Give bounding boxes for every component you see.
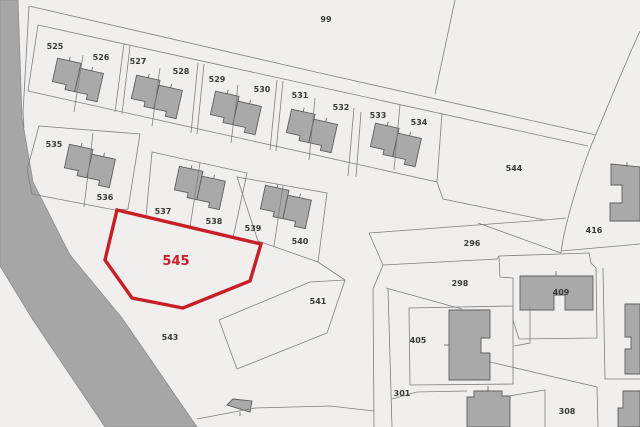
parcel-label-416: 416 — [586, 226, 603, 235]
parcel-label-539: 539 — [245, 224, 262, 233]
parcel-label-534: 534 — [411, 118, 428, 127]
parcel-label-405: 405 — [410, 336, 427, 345]
parcel-label-529: 529 — [209, 75, 226, 84]
highlight-parcel-label-545: 545 — [162, 254, 189, 269]
parcel-label-537: 537 — [155, 207, 172, 216]
parcel-label-531: 531 — [292, 91, 309, 100]
cadastral-map[interactable]: 9952552652752852953053153253353453553653… — [0, 0, 640, 427]
parcel-label-301: 301 — [394, 389, 411, 398]
parcel-label-525: 525 — [47, 42, 64, 51]
cadastral-map-canvas[interactable]: 9952552652752852953053153253353453553653… — [0, 0, 640, 427]
parcel-label-532: 532 — [333, 103, 350, 112]
parcel-label-528: 528 — [173, 67, 190, 76]
parcel-label-544: 544 — [506, 164, 523, 173]
parcel-label-308: 308 — [559, 407, 576, 416]
parcel-label-526: 526 — [93, 53, 110, 62]
parcel-label-527: 527 — [130, 57, 147, 66]
parcel-label-536: 536 — [97, 193, 114, 202]
parcel-label-535: 535 — [46, 140, 63, 149]
parcel-label-298: 298 — [452, 279, 469, 288]
parcel-label-296: 296 — [464, 239, 481, 248]
parcel-label-409: 409 — [553, 288, 570, 297]
parcel-label-543: 543 — [162, 333, 179, 342]
parcel-label-538: 538 — [206, 217, 223, 226]
parcel-label-533: 533 — [370, 111, 387, 120]
parcel-label-530: 530 — [254, 85, 271, 94]
parcel-label-541: 541 — [310, 297, 327, 306]
parcel-label-540: 540 — [292, 237, 309, 246]
parcel-label-99: 99 — [320, 15, 332, 24]
